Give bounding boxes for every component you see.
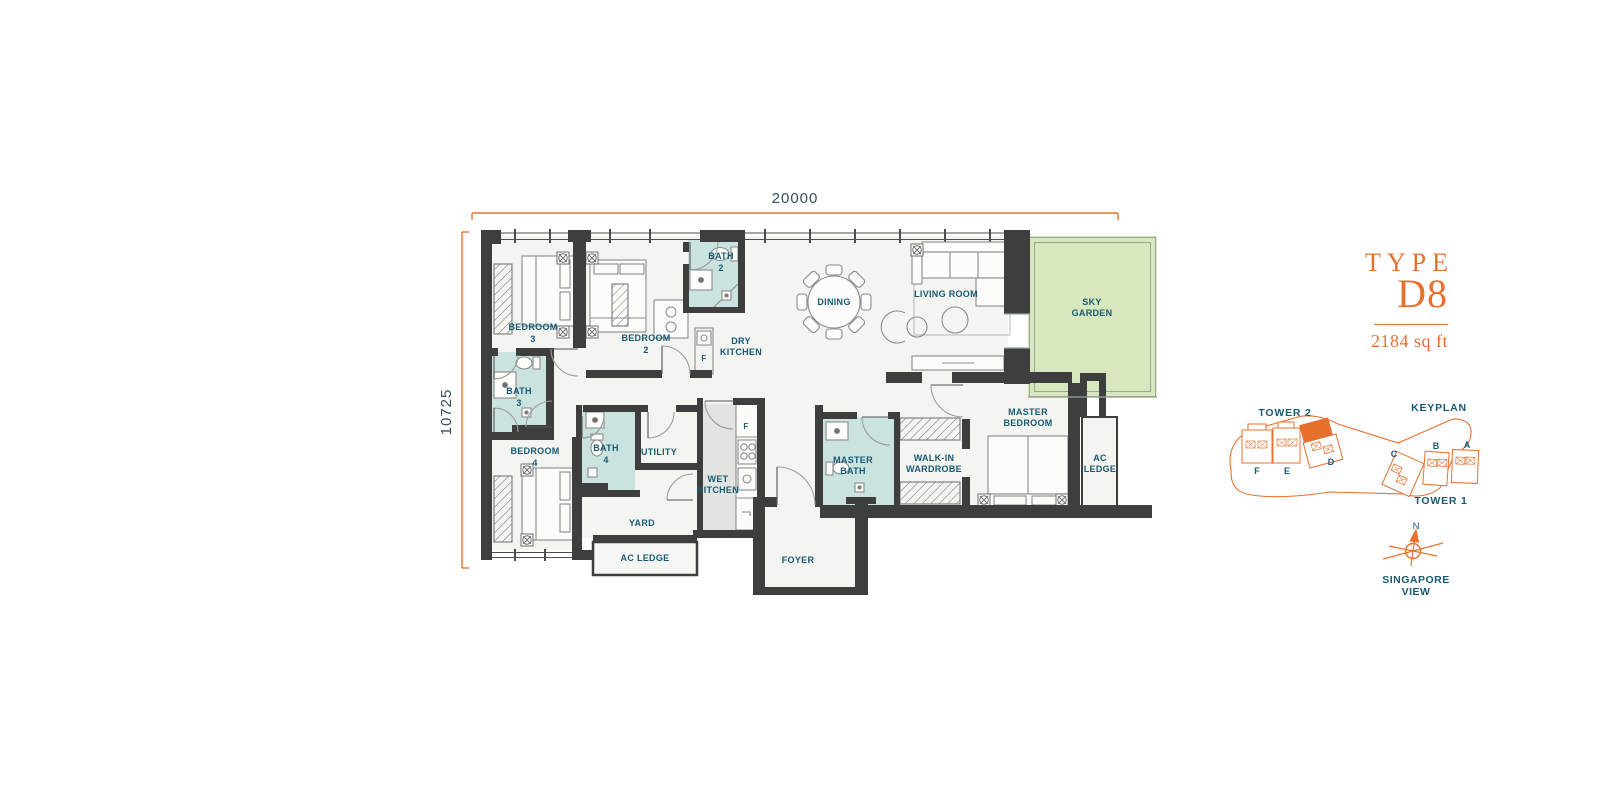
unit-type-code: D8 <box>1248 276 1448 311</box>
unit-area: 2184 sq ft <box>1248 332 1448 350</box>
room-label-living-room: LIVING ROOM <box>914 289 978 299</box>
room-label-walk-in-wardrobe: WALK-IN <box>914 453 955 463</box>
unit-label-c: C <box>1391 449 1398 459</box>
north-compass-icon <box>1383 528 1443 567</box>
room-label-master-bath-2: BATH <box>840 466 866 476</box>
room-label-foyer: FOYER <box>782 555 815 565</box>
room-label-wet-kitchen-2: KITCHEN <box>697 485 739 495</box>
room-label-bedroom2: BEDROOM <box>621 333 670 343</box>
keyplan-title: KEYPLAN <box>1411 402 1467 414</box>
title-block: TYPE D8 2184 sq ft <box>1248 249 1448 350</box>
compass-n-label: N <box>1413 521 1420 532</box>
title-divider <box>1374 324 1448 325</box>
room-label-bedroom4-num: 4 <box>532 458 537 468</box>
unit-label-e: E <box>1284 466 1290 476</box>
room-label-ac-ledge-right-2: LEDGE <box>1084 464 1117 474</box>
unit-label-d: D <box>1328 457 1335 467</box>
dimension-width-label: 20000 <box>772 190 819 207</box>
room-label-master-bedroom-2: BEDROOM <box>1003 418 1052 428</box>
unit-label-f: F <box>1254 466 1260 476</box>
room-label-bedroom3: BEDROOM <box>508 322 557 332</box>
floorplan-canvas: 20000 10725 BEDROOM 3 BEDROOM 2 BATH 2 B… <box>0 0 1600 803</box>
dimension-height-label: 10725 <box>438 389 455 436</box>
room-label-ac-ledge-bottom: AC LEDGE <box>621 553 670 563</box>
view-label-1: SINGAPORE <box>1382 574 1450 586</box>
room-label-wet-kitchen: WET <box>708 474 729 484</box>
fridge-label-wet: F <box>743 422 748 431</box>
room-label-bedroom2-num: 2 <box>643 345 648 355</box>
room-label-utility: UTILITY <box>641 447 677 457</box>
room-label-yard: YARD <box>629 518 655 528</box>
room-label-dry-kitchen: DRY <box>731 336 751 346</box>
room-label-bath2-num: 2 <box>718 263 723 273</box>
keyplan: KEYPLAN TOWER 2 TOWER 1 F E D C B A N SI… <box>1230 402 1479 598</box>
tower1-label: TOWER 1 <box>1414 495 1467 507</box>
room-label-sky-garden-2: GARDEN <box>1072 308 1113 318</box>
fridge-label-dry: F <box>701 354 706 363</box>
room-label-ac-ledge-right: AC <box>1093 453 1107 463</box>
room-label-sky-garden: SKY <box>1082 297 1101 307</box>
unit-label-b: B <box>1433 441 1440 451</box>
floorplan-page: 20000 10725 BEDROOM 3 BEDROOM 2 BATH 2 B… <box>0 0 1600 803</box>
room-label-bedroom4: BEDROOM <box>510 446 559 456</box>
room-label-master-bedroom: MASTER <box>1008 407 1048 417</box>
room-label-bedroom3-num: 3 <box>530 334 535 344</box>
room-label-bath2: BATH <box>708 251 734 261</box>
room-label-bath4-num: 4 <box>603 455 608 465</box>
room-label-bath3-num: 3 <box>516 398 521 408</box>
room-label-master-bath: MASTER <box>833 455 873 465</box>
room-label-dining: DINING <box>817 297 850 307</box>
view-label-2: VIEW <box>1402 586 1431 598</box>
tower2-label: TOWER 2 <box>1258 407 1311 419</box>
room-label-bath4: BATH <box>593 443 619 453</box>
room-label-dry-kitchen-2: KITCHEN <box>720 347 762 357</box>
room-label-walk-in-wardrobe-2: WARDROBE <box>906 464 962 474</box>
unit-label-a: A <box>1464 440 1471 450</box>
room-label-bath3: BATH <box>506 386 532 396</box>
bedroom4-window <box>492 549 572 561</box>
